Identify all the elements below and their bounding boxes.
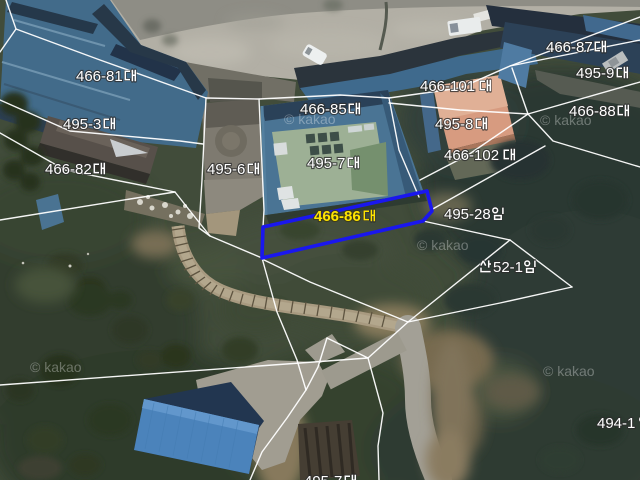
svg-text:466-87: 466-87: [546, 39, 593, 56]
svg-text:466-88: 466-88: [569, 103, 616, 120]
svg-text:466-86: 466-86: [314, 208, 361, 225]
svg-text:495-6: 495-6: [207, 161, 245, 178]
svg-text:466-101: 466-101: [420, 78, 475, 95]
svg-text:495-7: 495-7: [307, 155, 345, 172]
svg-text:© kakao: © kakao: [543, 363, 595, 379]
svg-text:466-81: 466-81: [76, 68, 123, 85]
svg-text:495-3: 495-3: [63, 116, 101, 133]
svg-text:466-85: 466-85: [300, 101, 347, 118]
svg-text:495-8: 495-8: [435, 116, 473, 133]
svg-text:495-7: 495-7: [304, 473, 342, 480]
svg-text:52-1: 52-1: [493, 259, 523, 276]
svg-text:© kakao: © kakao: [30, 359, 82, 375]
svg-text:466-102: 466-102: [444, 147, 499, 164]
svg-text:495-28: 495-28: [444, 206, 491, 223]
svg-text:466-82: 466-82: [45, 161, 92, 178]
svg-text:495-9: 495-9: [576, 65, 614, 82]
svg-text:494-1: 494-1: [597, 415, 635, 432]
svg-text:© kakao: © kakao: [417, 237, 469, 253]
